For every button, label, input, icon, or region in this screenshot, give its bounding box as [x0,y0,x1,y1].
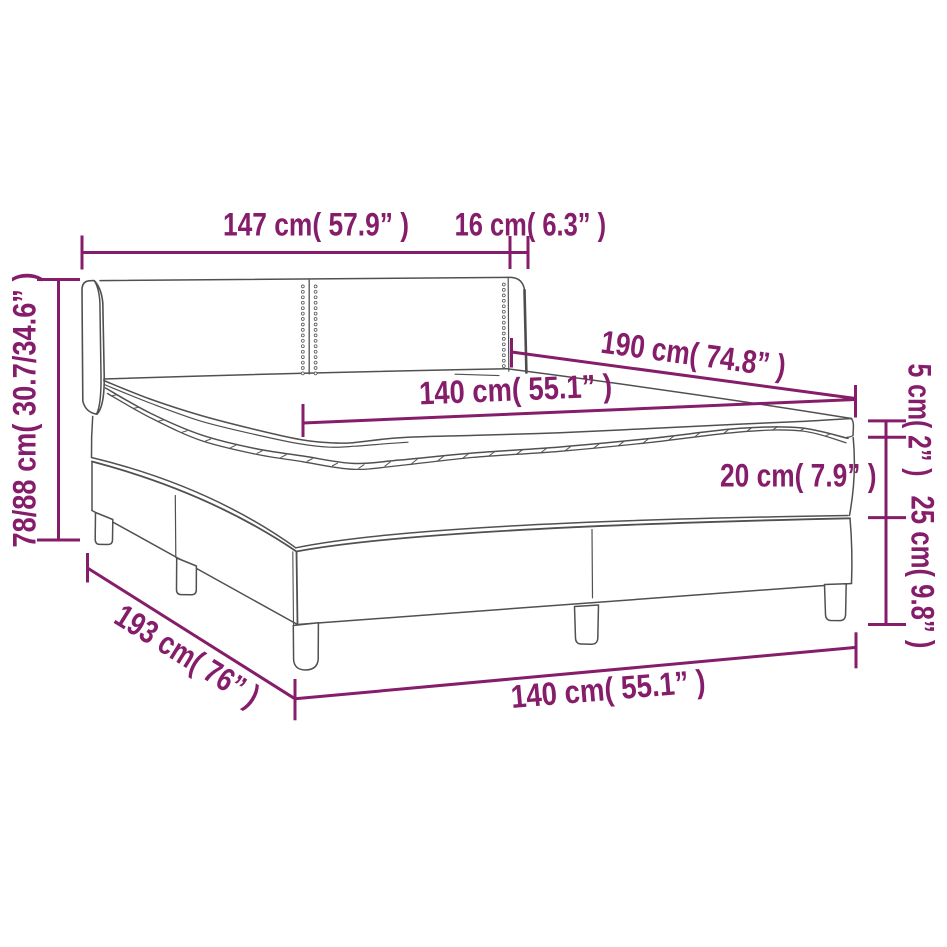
svg-text:78/88 cm( 30.7/34.6” ): 78/88 cm( 30.7/34.6” ) [7,273,43,548]
svg-text:16 cm( 6.3” ): 16 cm( 6.3” ) [455,207,606,243]
svg-text:147 cm( 57.9” ): 147 cm( 57.9” ) [223,207,409,243]
svg-text:5 cm( 2” ): 5 cm( 2” ) [902,364,938,477]
svg-text:20 cm( 7.9” ): 20 cm( 7.9” ) [720,458,877,494]
svg-text:25 cm( 9.8” ): 25 cm( 9.8” ) [905,496,941,649]
